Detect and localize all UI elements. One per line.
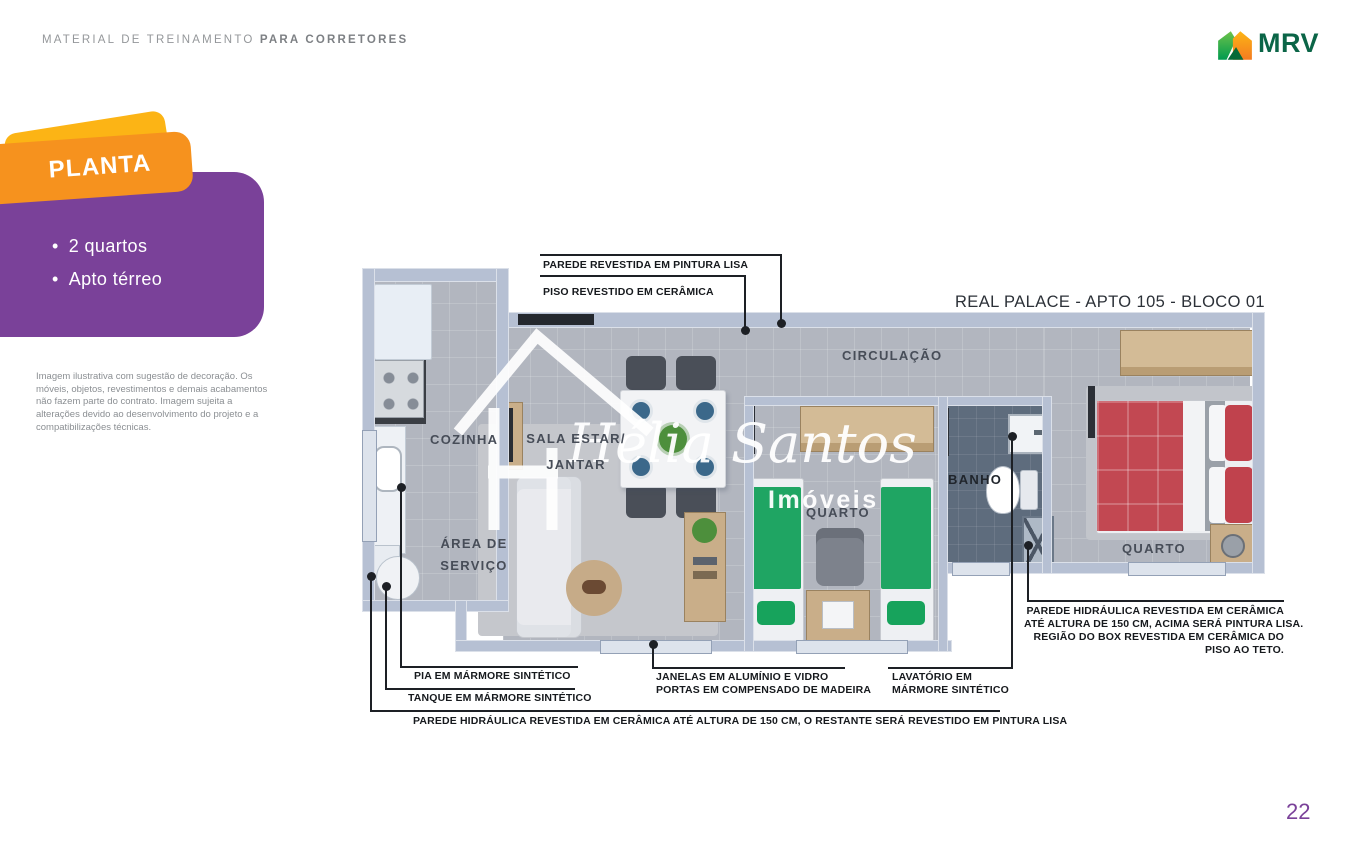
label-quarto-kids: QUARTO bbox=[806, 505, 870, 521]
fan bbox=[1221, 534, 1245, 558]
label-circulacao: CIRCULAÇÃO bbox=[842, 348, 942, 364]
annotation-lavatorio-1: LAVATÓRIO EM bbox=[892, 671, 972, 684]
wall bbox=[1252, 312, 1265, 574]
leader-line bbox=[888, 667, 1013, 669]
leader-line bbox=[652, 667, 845, 669]
kids-table bbox=[806, 590, 870, 642]
planta-badge-label: PLANTA bbox=[22, 150, 152, 187]
window-bath bbox=[952, 562, 1010, 576]
sideboard bbox=[684, 512, 726, 622]
mrv-logo-icon bbox=[1216, 28, 1254, 62]
plan-title: REAL PALACE - APTO 105 - BLOCO 01 bbox=[940, 293, 1265, 312]
leader-dot bbox=[741, 326, 750, 335]
wall bbox=[938, 396, 948, 652]
slide-page: MATERIAL DE TREINAMENTO PARA CORRETORES … bbox=[0, 0, 1350, 844]
bullet-dot: • bbox=[52, 236, 59, 256]
annotation-parede-pintura: PAREDE REVESTIDA EM PINTURA LISA bbox=[543, 259, 748, 272]
label-quarto-master: QUARTO bbox=[1122, 541, 1186, 557]
window-kids bbox=[796, 640, 908, 654]
label-sala-1: SALA ESTAR/ bbox=[521, 431, 631, 447]
master-door bbox=[1088, 386, 1095, 438]
leader-line bbox=[400, 666, 578, 668]
wall bbox=[744, 396, 1052, 406]
master-bed bbox=[1096, 400, 1254, 534]
fridge bbox=[374, 284, 432, 360]
leader-line bbox=[370, 579, 372, 711]
annotation-hidraulica-bottom: PAREDE HIDRÁULICA REVESTIDA EM CERÂMICA … bbox=[413, 715, 1067, 728]
stove bbox=[372, 360, 424, 418]
label-area-servico-1: ÁREA DE bbox=[428, 536, 520, 552]
round-rug bbox=[566, 560, 622, 616]
mrv-logo-text: MRV bbox=[1258, 28, 1319, 59]
pillow-red bbox=[1225, 467, 1253, 523]
red-duvet bbox=[1097, 401, 1183, 531]
leader-dot bbox=[777, 319, 786, 328]
dog bbox=[582, 580, 606, 594]
disclaimer-text: Imagem ilustrativa com sugestão de decor… bbox=[36, 371, 272, 435]
wall bbox=[362, 268, 509, 282]
leader-line bbox=[744, 275, 746, 331]
eyebrow-regular: MATERIAL DE TREINAMENTO bbox=[42, 34, 260, 46]
kids-bed-right bbox=[880, 478, 934, 642]
label-banho: BANHO bbox=[948, 472, 1002, 488]
annotation-tanque: TANQUE EM MÁRMORE SINTÉTICO bbox=[408, 692, 592, 705]
leader-line bbox=[652, 647, 654, 668]
annotation-hidraulica-right: PAREDE HIDRÁULICA REVESTIDA EM CERÂMICA … bbox=[1024, 605, 1284, 658]
sideboard-plant bbox=[692, 518, 717, 543]
window-kitchen bbox=[362, 430, 377, 542]
books bbox=[693, 557, 717, 565]
leader-line bbox=[385, 688, 575, 690]
green-pillow bbox=[887, 601, 925, 625]
annotation-line: PISO AO TETO. bbox=[1024, 644, 1284, 657]
bullet-text-2: Apto térreo bbox=[69, 269, 162, 289]
leader-line bbox=[385, 589, 387, 689]
kids-armchair bbox=[816, 528, 864, 586]
page-number: 22 bbox=[1286, 799, 1310, 825]
header-eyebrow: MATERIAL DE TREINAMENTO PARA CORRETORES bbox=[42, 34, 408, 46]
annotation-janelas-1: JANELAS EM ALUMÍNIO E VIDRO bbox=[656, 671, 828, 684]
leader-line bbox=[1027, 600, 1284, 602]
annotation-line: ATÉ ALTURA DE 150 CM, ACIMA SERÁ PINTURA… bbox=[1024, 618, 1284, 631]
leader-line bbox=[540, 254, 782, 256]
bullet-item-1: •2 quartos bbox=[52, 236, 147, 257]
label-sala-2: JANTAR bbox=[521, 457, 631, 473]
bullet-dot: • bbox=[52, 269, 59, 289]
window-master bbox=[1128, 562, 1226, 576]
annotation-piso-ceramica: PISO REVESTIDO EM CERÂMICA bbox=[543, 286, 714, 299]
annotation-line: PAREDE HIDRÁULICA REVESTIDA EM CERÂMICA bbox=[1024, 605, 1284, 618]
pillow-red bbox=[1225, 405, 1253, 461]
leader-line bbox=[1027, 548, 1029, 602]
label-cozinha: COZINHA bbox=[430, 432, 498, 448]
green-duvet bbox=[881, 487, 931, 589]
leader-line bbox=[370, 710, 1000, 712]
leader-line bbox=[780, 254, 782, 324]
annotation-janelas-2: PORTAS EM COMPENSADO DE MADEIRA bbox=[656, 684, 871, 697]
leader-line bbox=[1011, 440, 1013, 668]
annotation-pia: PIA EM MÁRMORE SINTÉTICO bbox=[414, 670, 571, 683]
mrv-logo: MRV bbox=[1216, 26, 1336, 66]
washer bbox=[376, 556, 420, 600]
kids-table-picture bbox=[822, 601, 854, 629]
leader-line bbox=[540, 275, 746, 277]
sheet-white bbox=[1183, 401, 1205, 531]
annotation-lavatorio-2: MÁRMORE SINTÉTICO bbox=[892, 684, 1009, 697]
dining-chair bbox=[676, 356, 716, 390]
toilet-tank bbox=[1020, 470, 1038, 510]
green-pillow bbox=[757, 601, 795, 625]
master-wardrobe bbox=[1120, 330, 1258, 376]
wall bbox=[1042, 396, 1052, 574]
label-area-servico-2: SERVIÇO bbox=[428, 558, 520, 574]
books bbox=[693, 571, 717, 579]
eyebrow-bold: PARA CORRETORES bbox=[260, 34, 408, 46]
bullet-text-1: 2 quartos bbox=[69, 236, 148, 256]
annotation-line: REGIÃO DO BOX REVESTIDA EM CERÂMICA DO bbox=[1024, 631, 1284, 644]
leader-line bbox=[400, 490, 402, 667]
master-side-table bbox=[1210, 524, 1254, 566]
bullet-item-2: •Apto térreo bbox=[52, 269, 162, 290]
